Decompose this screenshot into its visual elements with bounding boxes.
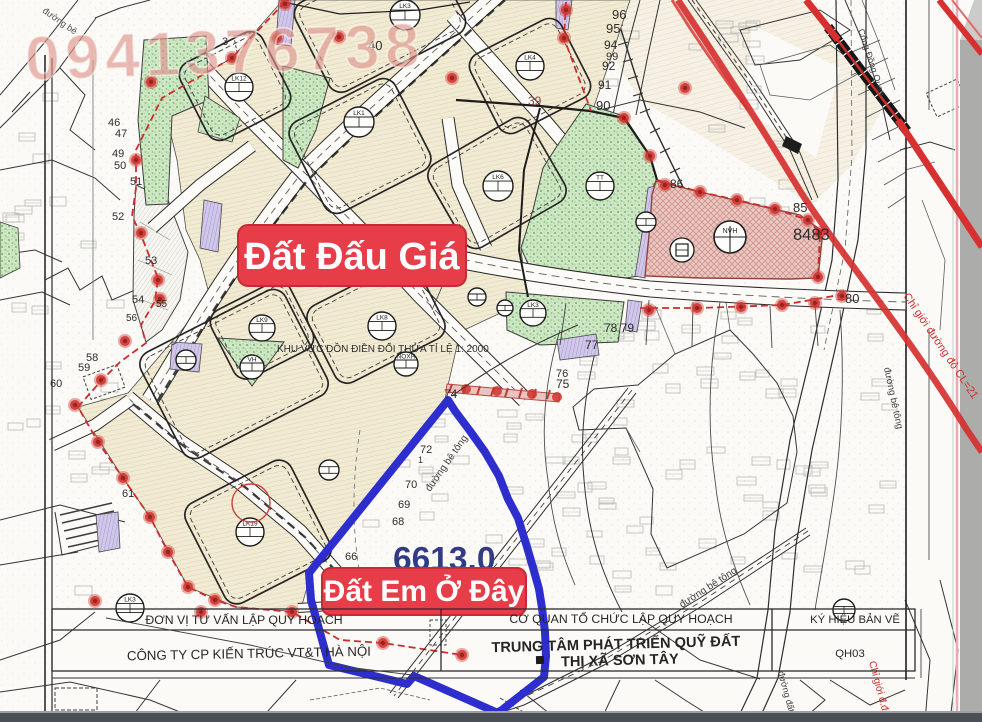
- svg-text:0941376738: 0941376738: [24, 11, 426, 94]
